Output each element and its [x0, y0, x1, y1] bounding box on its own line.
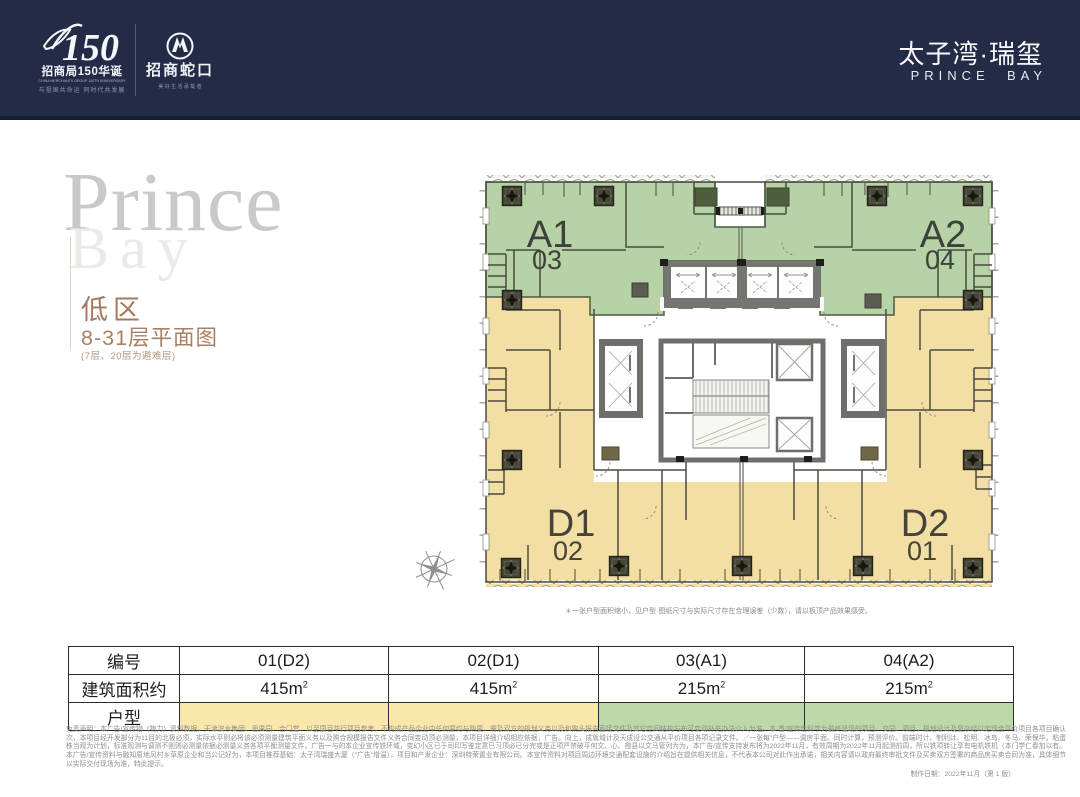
- svg-text:04: 04: [925, 245, 955, 275]
- svg-text:01: 01: [907, 536, 937, 566]
- svg-text:招商蛇口: 招商蛇口: [146, 61, 214, 79]
- svg-text:150: 150: [62, 27, 119, 69]
- svg-text:03: 03: [532, 245, 562, 275]
- svg-text:招商局150华诞: 招商局150华诞: [42, 64, 123, 78]
- svg-text:CHINA MERCHANTS GROUP 150TH AN: CHINA MERCHANTS GROUP 150TH ANNIVERSARY: [38, 79, 126, 83]
- svg-text:美 好 生 活 承 载 者: 美 好 生 活 承 载 者: [158, 83, 201, 90]
- svg-text:与祖国共命运 同时代共发展: 与祖国共命运 同时代共发展: [39, 86, 126, 94]
- svg-text:02: 02: [553, 536, 583, 566]
